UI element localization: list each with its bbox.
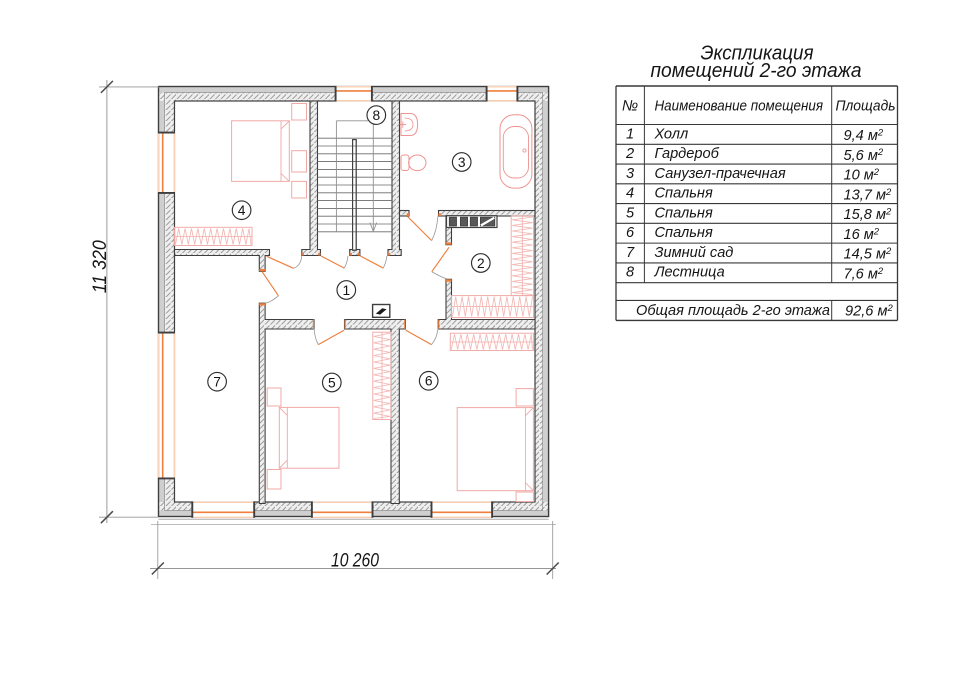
svg-text:14,5 м2: 14,5 м2: [844, 246, 892, 263]
svg-text:Гардероб: Гардероб: [655, 146, 720, 162]
svg-text:7: 7: [626, 245, 635, 261]
svg-text:1: 1: [626, 126, 634, 142]
svg-text:Лестница: Лестница: [654, 265, 725, 281]
svg-text:2: 2: [477, 256, 485, 271]
svg-text:8: 8: [372, 108, 380, 123]
svg-text:1: 1: [342, 283, 350, 298]
svg-text:6: 6: [425, 374, 433, 389]
svg-text:13,7 м2: 13,7 м2: [844, 187, 892, 204]
svg-text:Наименование помещения: Наименование помещения: [655, 98, 824, 115]
svg-text:Санузел-прачечная: Санузел-прачечная: [655, 166, 786, 182]
svg-text:9,4 м2: 9,4 м2: [844, 127, 884, 144]
svg-text:5: 5: [626, 205, 635, 221]
svg-text:4: 4: [238, 203, 246, 218]
svg-text:11 320: 11 320: [90, 240, 111, 293]
svg-text:7: 7: [213, 375, 221, 390]
svg-text:Зимний сад: Зимний сад: [655, 245, 734, 261]
svg-text:2: 2: [625, 146, 634, 162]
svg-text:8: 8: [626, 265, 635, 281]
svg-text:помещений 2-го этажа: помещений 2-го этажа: [651, 59, 862, 82]
svg-text:5,6 м2: 5,6 м2: [844, 147, 884, 164]
svg-text:3: 3: [458, 155, 466, 170]
svg-text:№: №: [622, 98, 638, 115]
svg-text:92,6 м2: 92,6 м2: [845, 303, 893, 320]
svg-text:10 260: 10 260: [331, 550, 379, 571]
svg-text:7,6 м2: 7,6 м2: [844, 266, 884, 283]
svg-text:Спальня: Спальня: [655, 186, 713, 202]
svg-text:Спальня: Спальня: [655, 205, 713, 221]
svg-text:6: 6: [626, 225, 635, 241]
svg-text:Спальня: Спальня: [655, 225, 713, 241]
svg-text:Холл: Холл: [654, 126, 689, 142]
svg-text:Площадь: Площадь: [836, 98, 896, 115]
svg-text:3: 3: [626, 166, 634, 182]
svg-text:15,8 м2: 15,8 м2: [844, 207, 892, 224]
svg-text:5: 5: [328, 375, 336, 390]
svg-text:4: 4: [626, 186, 634, 202]
svg-text:Общая площадь 2-го этажа: Общая площадь 2-го этажа: [636, 303, 830, 319]
